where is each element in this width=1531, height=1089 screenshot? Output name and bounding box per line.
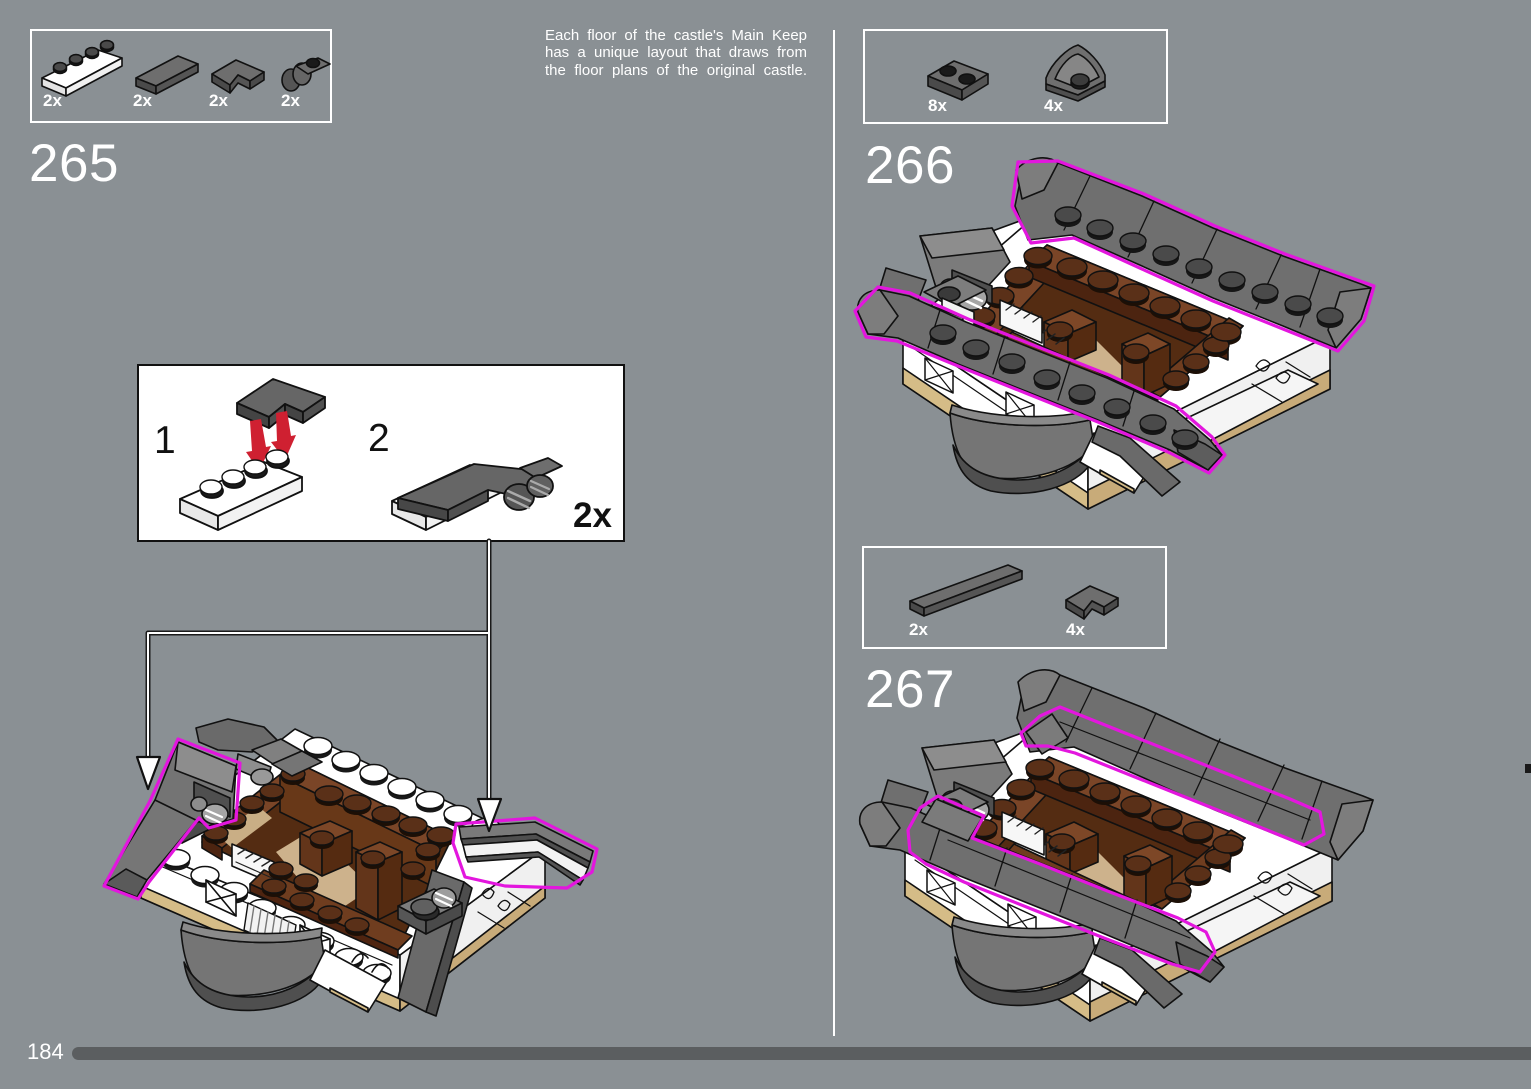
svg-text:2x: 2x bbox=[573, 496, 612, 535]
svg-text:2: 2 bbox=[368, 417, 390, 460]
svg-text:2x: 2x bbox=[43, 91, 62, 110]
svg-text:2x: 2x bbox=[209, 91, 228, 110]
svg-text:2x: 2x bbox=[133, 91, 152, 110]
svg-text:1: 1 bbox=[154, 419, 176, 462]
svg-text:8x: 8x bbox=[928, 96, 947, 115]
svg-text:2x: 2x bbox=[281, 91, 300, 110]
svg-text:4x: 4x bbox=[1044, 96, 1063, 115]
svg-text:2x: 2x bbox=[909, 620, 928, 639]
svg-text:4x: 4x bbox=[1066, 620, 1085, 639]
